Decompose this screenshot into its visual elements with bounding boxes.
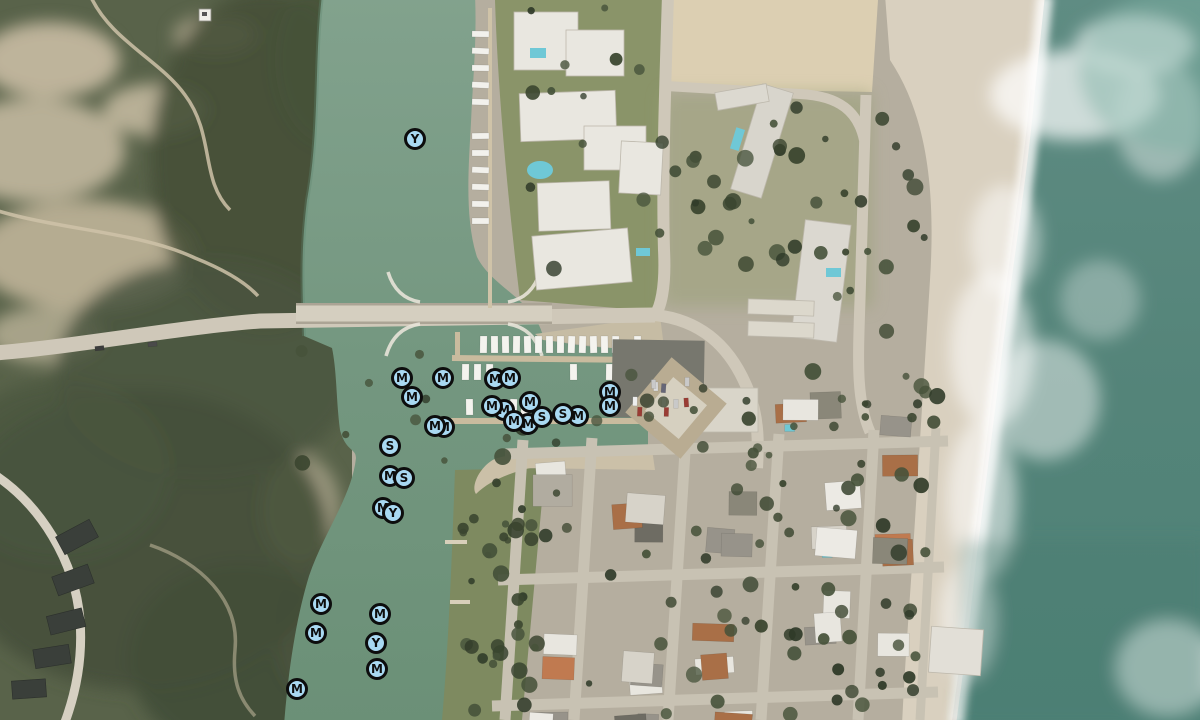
marker-s[interactable]: S [379,435,401,457]
marker-y[interactable]: Y [404,128,426,150]
marker-m[interactable]: M [366,658,388,680]
marker-m[interactable]: M [305,622,327,644]
marker-m[interactable]: M [401,386,423,408]
marker-m[interactable]: M [310,593,332,615]
marker-m[interactable]: M [481,395,503,417]
marker-m[interactable]: M [499,367,521,389]
marker-s[interactable]: S [531,406,553,428]
marker-y[interactable]: Y [382,502,404,524]
marker-s[interactable]: S [393,467,415,489]
marker-m[interactable]: M [424,415,446,437]
marker-m[interactable]: M [432,367,454,389]
marker-m[interactable]: M [599,395,621,417]
marker-m[interactable]: M [286,678,308,700]
marker-m[interactable]: M [503,410,525,432]
marker-y[interactable]: Y [365,632,387,654]
marker-m[interactable]: M [369,603,391,625]
marker-s[interactable]: S [552,403,574,425]
markers-layer: YMMMMMMMMMMMMMSSMMSMSMYMMMYMM [0,0,1200,720]
map-canvas[interactable]: YMMMMMMMMMMMMMSSMMSMSMYMMMYMM [0,0,1200,720]
